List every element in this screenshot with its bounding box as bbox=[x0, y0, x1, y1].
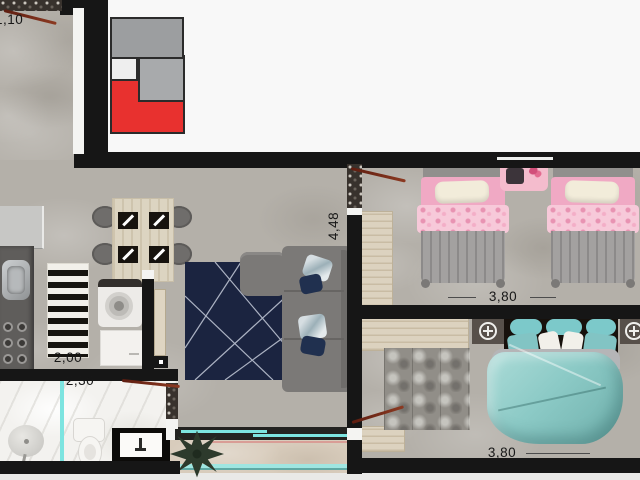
cooktop bbox=[0, 316, 34, 372]
shag-rug bbox=[384, 348, 470, 430]
placemat bbox=[118, 246, 138, 263]
balcony-accent-line bbox=[212, 441, 350, 443]
door-hinge-detail bbox=[154, 356, 168, 368]
sliding-glass-right bbox=[253, 434, 349, 437]
bed-body bbox=[551, 231, 635, 283]
dimension-line bbox=[448, 297, 476, 298]
faucet-icon bbox=[139, 438, 142, 448]
bed-pillow bbox=[565, 180, 620, 204]
sofa bbox=[282, 246, 352, 392]
placemat bbox=[118, 212, 138, 229]
shower-head bbox=[8, 425, 44, 457]
sofa-pillow-navy bbox=[300, 335, 327, 357]
dimension-bedroom-double-width: 3,80 bbox=[476, 445, 528, 460]
decor-item bbox=[506, 168, 524, 184]
nightstand bbox=[472, 319, 504, 344]
cutlery-icon bbox=[122, 214, 134, 226]
sofa-chaise bbox=[240, 252, 286, 296]
door-jamb bbox=[73, 8, 84, 154]
shower-drain bbox=[24, 439, 29, 444]
wall-entry-vertical bbox=[84, 0, 108, 156]
stove-burner bbox=[3, 354, 13, 364]
stove-burner bbox=[3, 338, 13, 348]
toilet-seat bbox=[84, 444, 96, 460]
bed-blanket-floral bbox=[417, 205, 509, 233]
cutlery-icon bbox=[122, 248, 134, 260]
washing-machine bbox=[98, 279, 142, 327]
dimension-line bbox=[530, 297, 556, 298]
keyplan-unit-gray-right bbox=[138, 55, 185, 102]
faucet-base-icon bbox=[135, 448, 146, 451]
hinge-dot bbox=[159, 360, 163, 364]
bedside-lamp-icon bbox=[625, 322, 640, 340]
fridge-cabinet bbox=[0, 206, 44, 249]
shower-glass-panel bbox=[60, 380, 64, 462]
dimension-bedroom-twin-width: 3,80 bbox=[477, 289, 529, 304]
stove-burner bbox=[17, 322, 27, 332]
blanket-fold bbox=[498, 387, 606, 412]
door-leaf bbox=[154, 289, 166, 356]
bed-foot bbox=[496, 279, 505, 288]
bed-pillow bbox=[435, 180, 490, 204]
cabinet-label-line bbox=[129, 353, 139, 355]
vanity-sink bbox=[120, 433, 162, 457]
laundry-cabinet bbox=[100, 330, 144, 366]
wardrobe-bedroom-twin bbox=[362, 212, 392, 306]
keyplan-unit-gray-top bbox=[110, 17, 184, 59]
bed-foot bbox=[421, 279, 430, 288]
bed-foot bbox=[626, 279, 635, 288]
wall-mid-vertical bbox=[347, 215, 362, 428]
floor-plan: 1,10 2,00 2,30 4,48 3,80 3,80 bbox=[0, 0, 640, 480]
wardrobe-bedroom-double-top bbox=[362, 318, 468, 350]
placemat bbox=[149, 246, 169, 263]
bed-blanket-floral bbox=[547, 205, 639, 233]
dimension-kitchen-width: 2,00 bbox=[44, 350, 92, 365]
sink-basin bbox=[7, 266, 25, 294]
cutlery-icon bbox=[153, 248, 165, 260]
door-jamb bbox=[166, 419, 178, 429]
stove-burner bbox=[3, 322, 13, 332]
door-jamb bbox=[347, 428, 362, 440]
single-bed bbox=[419, 163, 507, 289]
dimension-line bbox=[526, 453, 590, 454]
dimension-living-depth: 4,48 bbox=[326, 200, 342, 252]
stove-burner bbox=[17, 354, 27, 364]
washer-lid bbox=[105, 292, 133, 320]
stove-burner bbox=[17, 338, 27, 348]
outside-area-bottom bbox=[0, 473, 640, 480]
double-bed-blanket bbox=[487, 352, 623, 444]
placemat bbox=[149, 212, 169, 229]
wall-bathroom-bottom bbox=[0, 461, 180, 474]
single-bed bbox=[549, 163, 637, 289]
wall-bedroom-double-bottom bbox=[352, 458, 640, 473]
wall-between-bedrooms bbox=[352, 305, 640, 319]
washer-drum bbox=[114, 301, 124, 311]
dimension-bathroom-width: 2,30 bbox=[56, 373, 104, 388]
wardrobe-bedroom-double-bottom bbox=[362, 427, 404, 451]
kitchen-runner-rug bbox=[48, 264, 88, 357]
wall-bathroom-granite bbox=[166, 383, 178, 419]
bed-foot bbox=[551, 279, 560, 288]
window-line bbox=[497, 157, 553, 160]
bathroom-vanity bbox=[112, 428, 170, 462]
kitchen-sink bbox=[2, 260, 30, 300]
door-jamb bbox=[142, 270, 154, 279]
washer-control-panel bbox=[98, 279, 142, 287]
keyplan-logo bbox=[105, 14, 189, 138]
floor-entry bbox=[0, 8, 76, 162]
bed-body bbox=[421, 231, 505, 283]
bedside-lamp-icon bbox=[479, 322, 497, 340]
nightstand bbox=[620, 319, 640, 344]
dimension-entry-width: 1,10 bbox=[0, 12, 37, 27]
wall-kitchen-corridor bbox=[142, 279, 154, 371]
cutlery-icon bbox=[153, 214, 165, 226]
